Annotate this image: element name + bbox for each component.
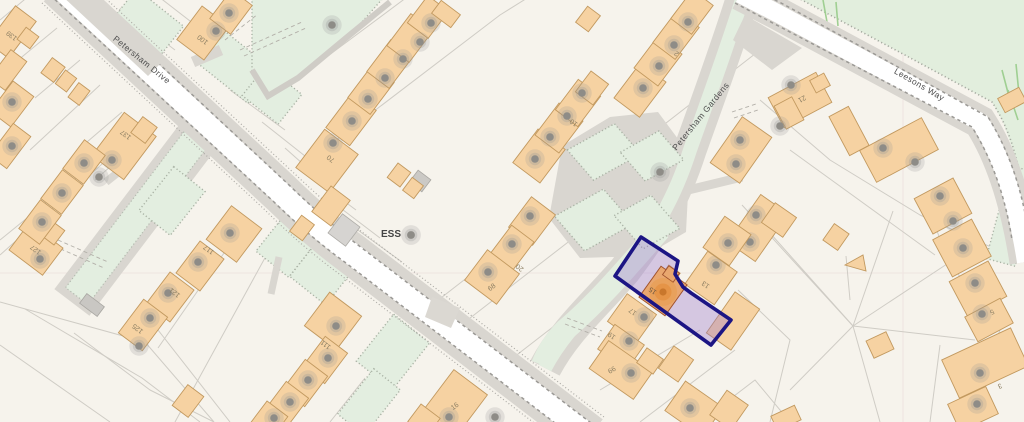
- svg-text:ESS: ESS: [381, 229, 401, 240]
